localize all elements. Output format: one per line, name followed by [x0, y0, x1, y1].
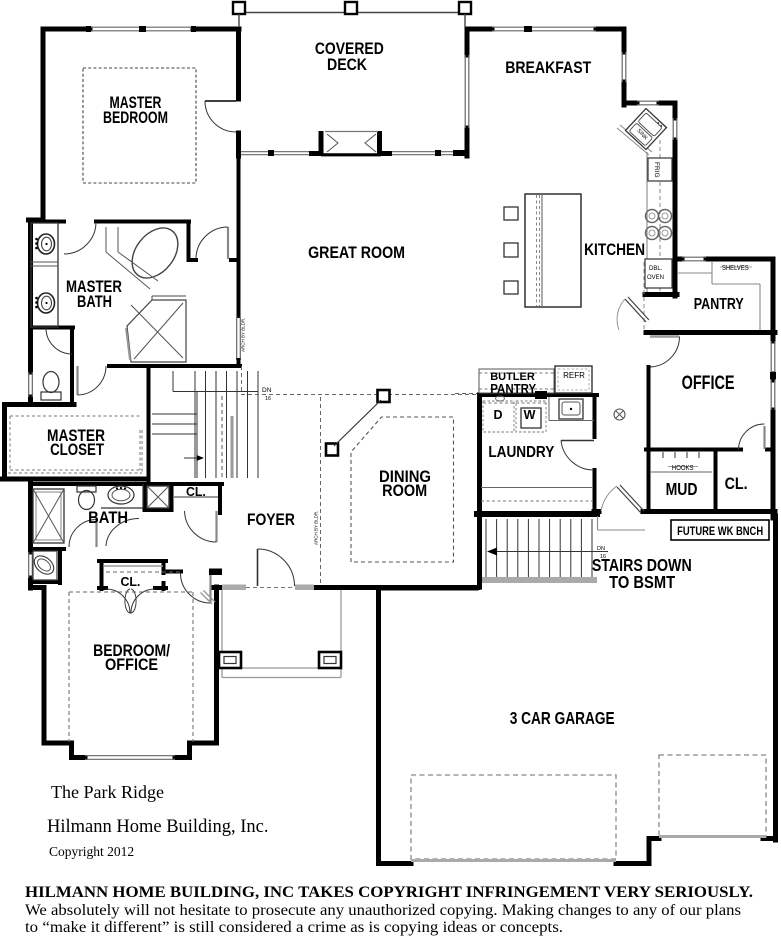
svg-text:The Park Ridge: The Park Ridge — [51, 782, 164, 802]
svg-text:LAUNDRY: LAUNDRY — [488, 444, 554, 461]
svg-text:BATH: BATH — [88, 509, 128, 527]
svg-text:OFFICE: OFFICE — [682, 372, 735, 393]
svg-text:Hilmann Home Building, Inc.: Hilmann Home Building, Inc. — [47, 817, 268, 837]
svg-text:to “make it different” is stil: to “make it different” is still consider… — [25, 919, 563, 936]
svg-text:HILMANN HOME BUILDING, INC TAK: HILMANN HOME BUILDING, INC TAKES COPYRIG… — [25, 884, 753, 901]
svg-text:OVEN: OVEN — [647, 275, 664, 281]
svg-text:PANTRY: PANTRY — [694, 296, 744, 314]
svg-text:PANTRY: PANTRY — [490, 381, 536, 396]
svg-text:DN: DN — [262, 387, 272, 394]
svg-text:HOOKS: HOOKS — [672, 465, 694, 473]
svg-text:16: 16 — [265, 396, 271, 402]
svg-text:KITCHEN: KITCHEN — [584, 241, 645, 260]
svg-text:DBL.: DBL. — [649, 266, 663, 272]
svg-text:CL.: CL. — [725, 475, 748, 493]
svg-text:OFFICE: OFFICE — [105, 656, 158, 674]
svg-text:CLOSET: CLOSET — [50, 441, 105, 460]
svg-text:BREAKFAST: BREAKFAST — [505, 59, 591, 78]
svg-text:CL.: CL. — [120, 575, 140, 589]
svg-text:SHELVES: SHELVES — [722, 265, 749, 273]
svg-text:ARCH BY BLDR.: ARCH BY BLDR. — [241, 318, 246, 352]
svg-text:BATH: BATH — [77, 292, 112, 311]
svg-text:ARCH BY BLDR.: ARCH BY BLDR. — [314, 511, 319, 545]
svg-text:BEDROOM: BEDROOM — [103, 109, 168, 127]
svg-text:FRIG: FRIG — [653, 162, 660, 178]
svg-text:W: W — [524, 408, 536, 422]
svg-text:We absolutely will not hesitat: We absolutely will not hesitate to prose… — [25, 902, 741, 919]
svg-text:3 CAR GARAGE: 3 CAR GARAGE — [510, 710, 615, 729]
svg-text:MUD: MUD — [666, 479, 698, 499]
svg-text:FOYER: FOYER — [247, 511, 295, 530]
svg-text:D: D — [493, 408, 502, 422]
svg-text:CL.: CL. — [186, 485, 206, 499]
svg-text:DECK: DECK — [327, 56, 368, 74]
svg-text:DN: DN — [597, 546, 605, 552]
svg-text:TO BSMT: TO BSMT — [609, 573, 675, 593]
svg-text:ROOM: ROOM — [382, 482, 427, 500]
svg-text:Copyright 2012: Copyright 2012 — [49, 844, 134, 859]
svg-text:FUTURE WK BNCH: FUTURE WK BNCH — [677, 525, 763, 538]
svg-text:GREAT ROOM: GREAT ROOM — [308, 244, 405, 262]
svg-text:REFR: REFR — [563, 371, 585, 380]
